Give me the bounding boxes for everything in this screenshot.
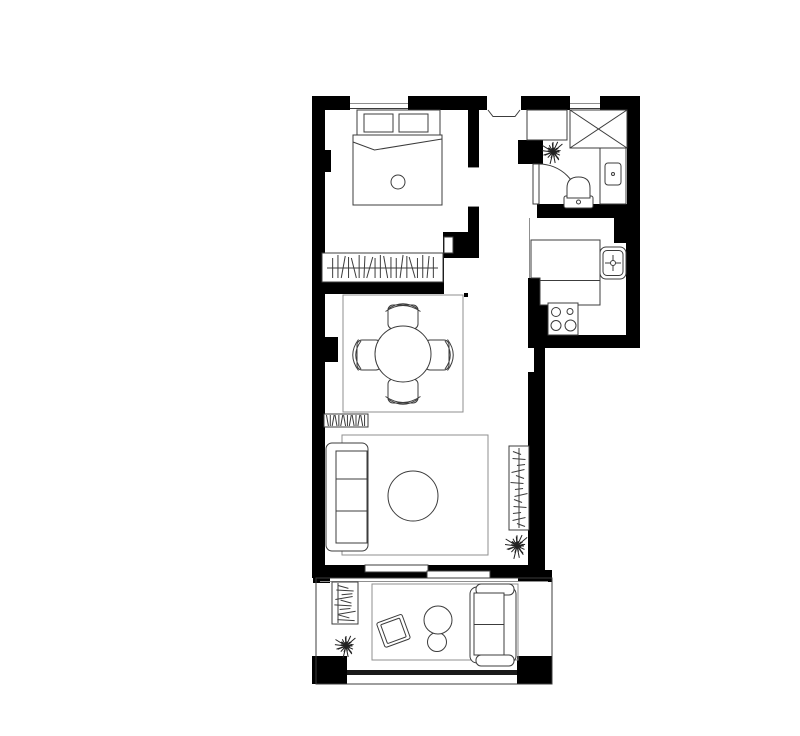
kitchen-sink — [600, 247, 626, 279]
living-shelf — [509, 446, 529, 530]
balcony-chair — [376, 614, 410, 648]
kitchen-counter — [530, 218, 601, 305]
coffee-table — [388, 471, 438, 521]
hall-closet — [527, 110, 567, 140]
balcony-side-table — [424, 606, 452, 652]
balcony-planter — [332, 582, 358, 624]
dining-table — [375, 326, 431, 382]
bed — [353, 110, 442, 205]
toilet — [564, 177, 593, 208]
sofa — [326, 443, 368, 551]
shower — [570, 110, 627, 148]
entry-door — [487, 96, 521, 117]
balcony-railing — [347, 670, 517, 675]
wardrobe — [322, 253, 443, 282]
radiator — [324, 414, 368, 427]
floorplan-drawing — [0, 0, 800, 736]
floorplan-page — [0, 0, 800, 736]
bathroom-sink-counter — [600, 148, 626, 204]
bedroom-window — [350, 96, 408, 110]
living-plant — [505, 535, 527, 559]
bathroom-plant — [542, 142, 563, 164]
bathroom-window — [570, 96, 600, 110]
stove — [548, 303, 578, 335]
balcony-plant — [335, 636, 356, 658]
bedroom-doorway — [468, 168, 479, 207]
loveseat — [470, 584, 516, 666]
